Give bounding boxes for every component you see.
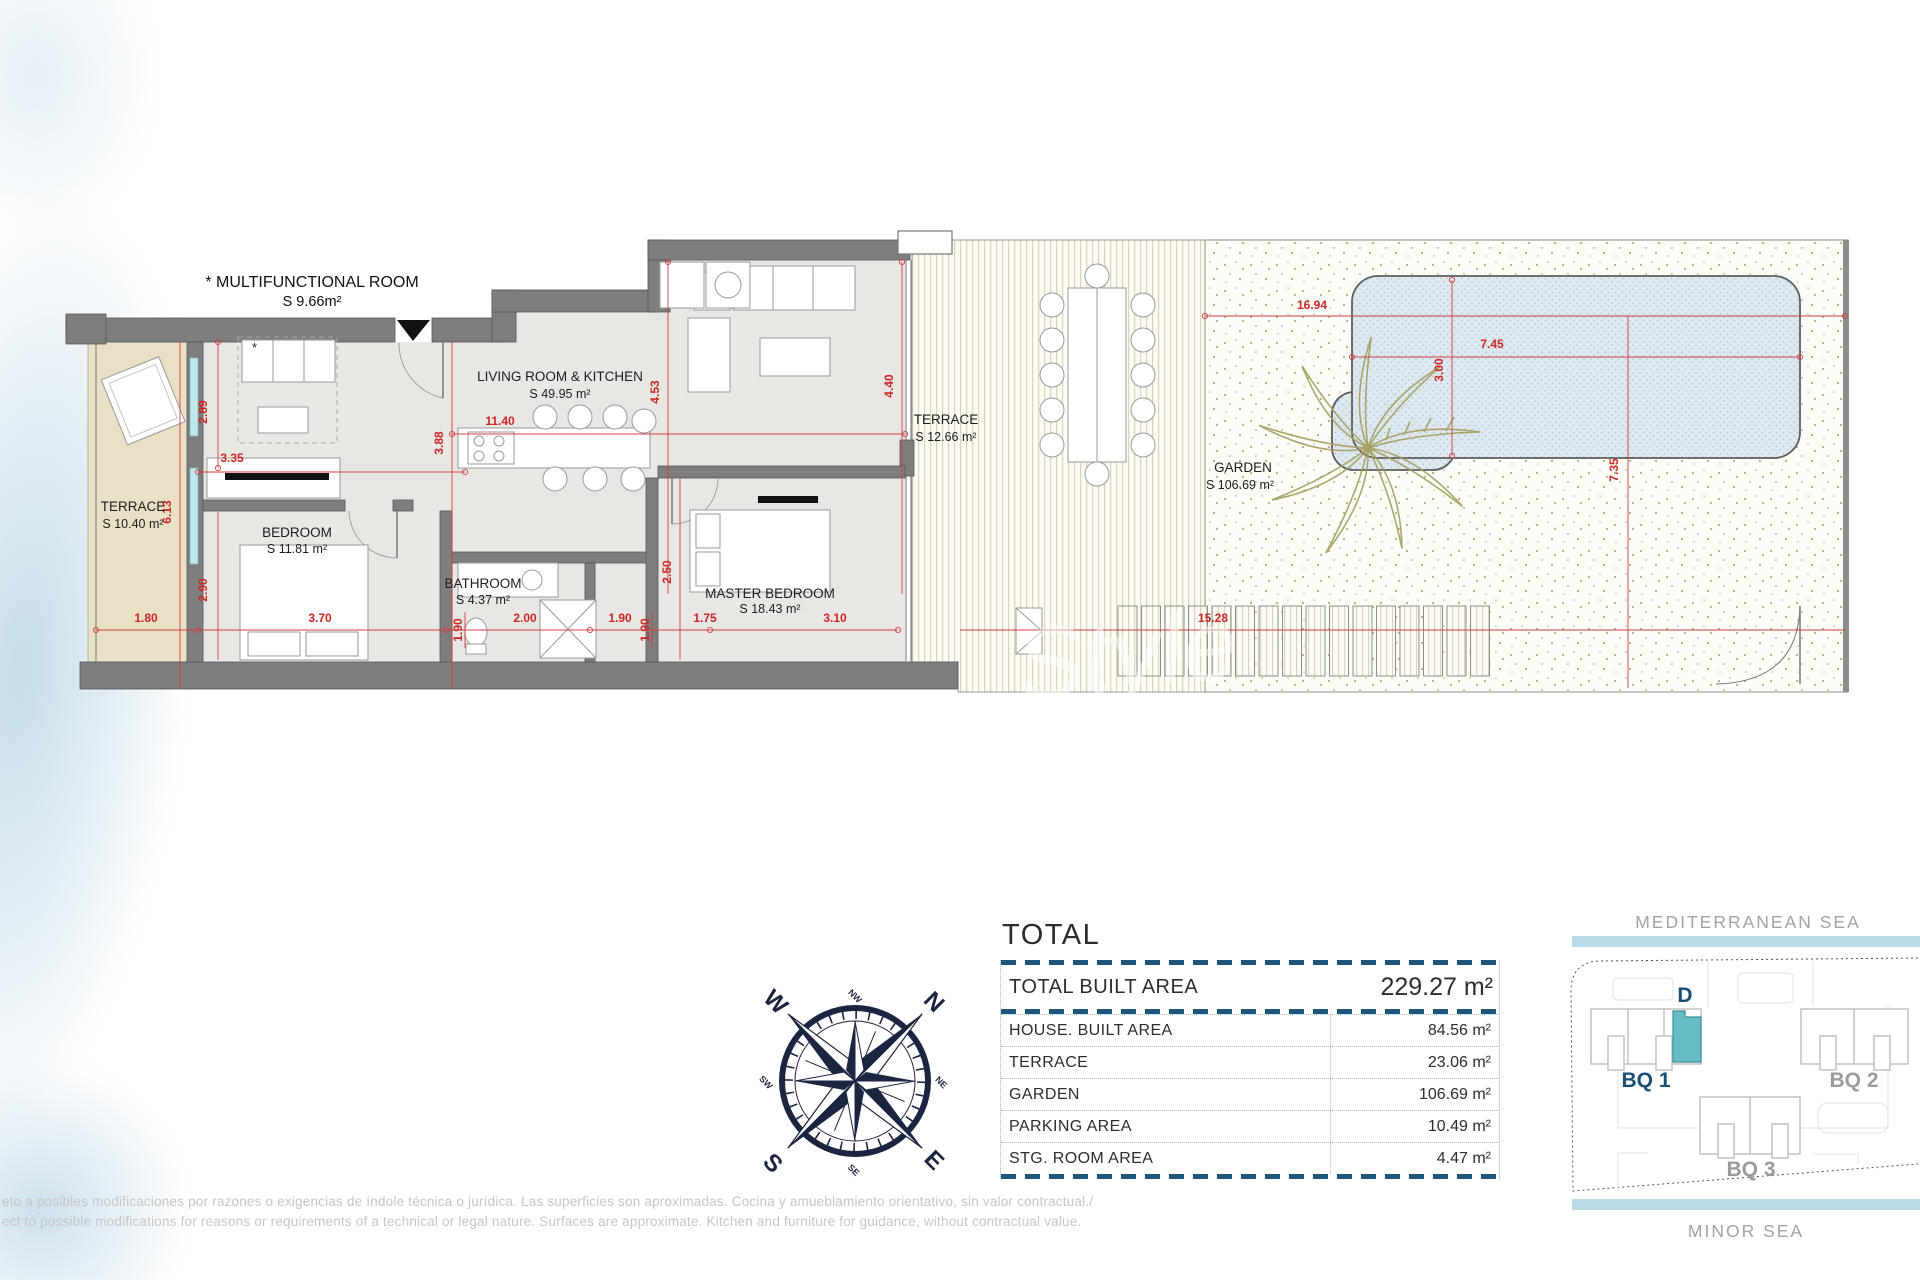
sea-label-top: MEDITERRANEAN SEA [1635,912,1861,932]
svg-text:3.35: 3.35 [220,451,244,465]
svg-text:3.10: 3.10 [823,611,847,625]
sea-label-bottom: MINOR SEA [1688,1221,1804,1241]
svg-text:16.94: 16.94 [1297,298,1327,312]
svg-text:S 18.43 m²: S 18.43 m² [739,602,800,616]
svg-text:2.90: 2.90 [196,578,210,602]
svg-text:S 9.66m²: S 9.66m² [283,294,342,310]
svg-text:NW: NW [846,987,864,1005]
area-summary-table: TOTAL TOTAL BUILT AREA 229.27 m² HOUSE. … [1000,919,1500,1179]
svg-text:S 10.40 m²: S 10.40 m² [102,517,163,531]
bq3-label: BQ 3 [1726,1158,1775,1181]
plan-title: * MULTIFUNCTIONAL ROOM [205,274,418,291]
bq2-label: BQ 2 [1829,1069,1878,1092]
svg-text:*: * [252,340,257,355]
table-row: PARKING AREA 10.49 m² [1001,1110,1499,1142]
svg-text:1.90: 1.90 [608,611,632,625]
building-bq2 [1801,1009,1908,1070]
svg-text:TERRACE: TERRACE [914,412,979,427]
svg-text:3.88: 3.88 [432,431,446,455]
table-row-total: TOTAL BUILT AREA 229.27 m² [1001,965,1499,1009]
svg-text:3.00: 3.00 [1432,358,1446,382]
svg-text:1.90: 1.90 [638,618,652,642]
svg-text:TERRACE: TERRACE [101,499,166,514]
disclaimer-line-en: ect to possible modifications for reason… [2,1212,1002,1232]
wardrobe-bar [758,496,818,503]
svg-text:NE: NE [933,1074,949,1090]
svg-text:BATHROOM: BATHROOM [445,576,522,591]
svg-text:7.45: 7.45 [1480,337,1504,351]
svg-text:SW: SW [757,1074,775,1092]
table-row: TERRACE 23.06 m² [1001,1046,1499,1078]
table-row: GARDEN 106.69 m² [1001,1078,1499,1110]
svg-text:11.40: 11.40 [485,414,515,428]
svg-text:E: E [919,1145,949,1175]
svg-text:MASTER BEDROOM: MASTER BEDROOM [705,586,835,601]
watermark: Style [1011,587,1244,722]
unit-d-highlight [1673,1011,1701,1062]
building-bq3 [1700,1097,1800,1158]
table-border-bottom [1001,1174,1499,1179]
svg-text:SE: SE [846,1162,862,1178]
toilet-icon [465,618,487,646]
window-icon [190,468,198,564]
svg-text:1.90: 1.90 [451,618,465,642]
svg-text:2.50: 2.50 [660,560,674,584]
disclaimer-line-es: eto a posibles modificaciones por razone… [2,1192,1002,1212]
table-row: HOUSE. BUILT AREA 84.56 m² [1001,1014,1499,1046]
site-map: MEDITERRANEAN SEA D BQ 1 BQ 2 [1558,898,1920,1280]
table-title: TOTAL [1002,919,1500,952]
svg-text:N: N [918,986,949,1017]
gate-marker [898,231,952,254]
svg-text:S 106.69 m²: S 106.69 m² [1206,478,1274,492]
svg-text:1.75: 1.75 [693,611,717,625]
sea-band-top [1572,936,1920,947]
sea-band-bottom [1572,1199,1920,1210]
svg-text:BEDROOM: BEDROOM [262,525,332,540]
svg-text:4.53: 4.53 [648,380,662,404]
svg-text:S: S [757,1148,787,1178]
total-built-area-label: TOTAL BUILT AREA [1009,976,1380,999]
svg-text:2.89: 2.89 [196,400,210,424]
svg-text:2.00: 2.00 [513,611,537,625]
brochure-page: * [0,0,1920,1280]
svg-text:4.40: 4.40 [882,374,896,398]
disclaimer: eto a posibles modificaciones por razone… [2,1192,1002,1232]
unit-d-label: D [1677,984,1692,1007]
bq1-label: BQ 1 [1621,1069,1670,1092]
svg-text:1.80: 1.80 [134,611,158,625]
svg-text:LIVING ROOM & KITCHEN: LIVING ROOM & KITCHEN [477,369,643,384]
total-built-area-value: 229.27 m² [1380,973,1493,1002]
svg-text:3.70: 3.70 [308,611,332,625]
svg-text:S 11.81 m²: S 11.81 m² [267,542,327,556]
svg-text:7.35: 7.35 [1607,458,1621,482]
svg-text:S 49.95 m²: S 49.95 m² [529,387,590,401]
swimming-pool [1332,276,1800,470]
svg-text:S 4.37 m²: S 4.37 m² [456,593,510,607]
entrance-marker-icon [397,320,430,341]
table-row: STG. ROOM AREA 4.47 m² [1001,1142,1499,1174]
svg-text:GARDEN: GARDEN [1214,460,1272,475]
svg-text:S 12.66 m²: S 12.66 m² [915,430,976,444]
